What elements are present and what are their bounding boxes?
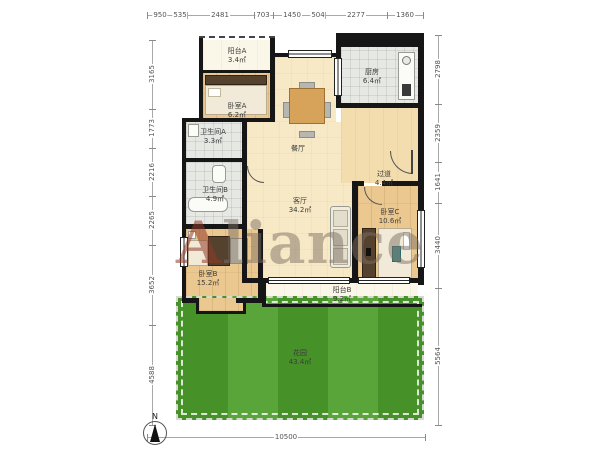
dim-label: 703	[255, 11, 270, 19]
dim-label: 1450	[282, 11, 302, 19]
tick	[149, 245, 156, 246]
dim-line-right	[438, 35, 439, 425]
window	[288, 50, 332, 58]
bed-c-pillow	[403, 232, 410, 250]
room-area: 4.4㎡	[375, 179, 393, 188]
balcony-open-edge	[199, 36, 275, 38]
dining-chair	[299, 131, 315, 138]
tick	[149, 196, 156, 197]
room-name: 餐厅	[291, 144, 305, 153]
sofa-cushion	[333, 248, 348, 265]
wall	[242, 118, 247, 282]
room-area: 9.2㎡	[333, 295, 351, 304]
tick	[435, 203, 442, 204]
wall	[182, 224, 247, 229]
tick	[149, 325, 156, 326]
bed-a-pillow	[208, 88, 221, 97]
room-name: 卫生间B	[202, 186, 228, 195]
dim-label: 2277	[346, 11, 366, 19]
dining-chair	[324, 102, 331, 118]
bed-a-headboard	[205, 75, 267, 85]
tick	[435, 425, 442, 426]
window	[358, 277, 410, 284]
dim-label: 5564	[434, 346, 442, 366]
tick	[423, 12, 424, 19]
entry-door-leaf	[411, 150, 413, 174]
wall	[182, 158, 246, 162]
room-area: 6.2㎡	[228, 111, 246, 120]
room-label-bedroom-b: 卧室B 15.2㎡	[197, 270, 220, 288]
dim-label: 2359	[434, 123, 442, 143]
window	[417, 210, 425, 268]
wall	[270, 38, 275, 122]
sofa-cushion	[333, 210, 348, 227]
room-name: 阳台B	[333, 286, 352, 295]
dim-label: 3440	[434, 235, 442, 255]
tick	[147, 12, 148, 19]
bathroom-a-sink	[188, 124, 199, 137]
dim-label: 2481	[210, 11, 230, 19]
wardrobe-b	[208, 236, 230, 266]
tick	[149, 109, 156, 110]
room-name: 厨房	[365, 68, 379, 77]
dim-label: 3165	[148, 64, 156, 84]
wall	[182, 298, 198, 303]
room-area: 3.3㎡	[204, 137, 222, 146]
tick	[425, 434, 426, 441]
room-label-living: 客厅 34.2㎡	[289, 197, 312, 215]
wall	[341, 103, 424, 108]
room-label-balcony-b: 阳台B 9.2㎡	[333, 286, 352, 304]
room-area: 4.9㎡	[206, 195, 224, 204]
wall	[262, 304, 422, 307]
room-label-dining: 餐厅	[291, 144, 305, 153]
room-label-garden: 花园 43.4㎡	[289, 349, 312, 367]
floor-plan: 阳台A 3.4㎡ 卧室A 6.2㎡ 卫生间A 3.3㎡ 厨房 6.4㎡ 餐厅 过…	[0, 0, 600, 450]
dim-label: 504	[310, 11, 325, 19]
compass: N	[140, 412, 170, 450]
dim-label: 2216	[148, 162, 156, 182]
tick	[435, 288, 442, 289]
wall	[352, 185, 358, 278]
tick	[435, 104, 442, 105]
tv	[366, 248, 371, 256]
wall	[236, 298, 262, 303]
dim-label: 1773	[148, 118, 156, 138]
tick	[149, 40, 156, 41]
dim-label: 950	[152, 11, 167, 19]
room-label-bedroom-c: 卧室C 10.6㎡	[379, 208, 402, 226]
dim-label: 1360	[395, 11, 415, 19]
room-area: 6.4㎡	[363, 77, 381, 86]
compass-icon	[143, 421, 167, 445]
room-area: 3.4㎡	[228, 56, 246, 65]
dim-label: 1641	[434, 172, 442, 192]
room-label-bathroom-a: 卫生间A 3.3㎡	[200, 128, 226, 146]
room-area: 43.4㎡	[289, 358, 312, 367]
tick	[387, 12, 388, 19]
tick	[149, 148, 156, 149]
tick	[273, 12, 274, 19]
room-label-kitchen: 厨房 6.4㎡	[363, 68, 381, 86]
room-name: 卧室C	[381, 208, 400, 217]
room-label-balcony-a: 阳台A 3.4㎡	[228, 47, 247, 65]
bed-c-throw	[392, 246, 401, 262]
wall	[199, 38, 203, 122]
room-area: 10.6㎡	[379, 217, 402, 226]
room-name: 阳台A	[228, 47, 247, 56]
nightstand	[188, 231, 196, 239]
room-label-bedroom-a: 卧室A 6.2㎡	[228, 102, 247, 120]
room-label-bathroom-b: 卫生间B 4.9㎡	[202, 186, 228, 204]
compass-north-label: N	[152, 412, 158, 421]
window	[334, 58, 342, 96]
room-label-hallway: 过道 4.4㎡	[375, 170, 393, 188]
dim-label: 2265	[148, 210, 156, 230]
dim-label: 10500	[274, 433, 298, 441]
window	[268, 277, 350, 284]
kitchen-sink	[402, 56, 411, 65]
tick	[435, 35, 442, 36]
kitchen-stove	[402, 84, 411, 96]
dining-table	[289, 88, 325, 124]
window	[180, 237, 188, 267]
toilet	[212, 165, 226, 183]
wall	[262, 283, 266, 306]
room-name: 卧室A	[228, 102, 247, 111]
room-name: 卫生间A	[200, 128, 226, 137]
tick	[435, 162, 442, 163]
dim-label: 3652	[148, 275, 156, 295]
sofa-cushion	[333, 229, 348, 246]
room-name: 客厅	[293, 197, 307, 206]
wall	[336, 33, 424, 47]
wall	[352, 181, 364, 186]
room-name: 花园	[293, 349, 307, 358]
room-name: 过道	[377, 170, 391, 179]
room-area: 15.2㎡	[197, 279, 220, 288]
room-area: 34.2㎡	[289, 206, 312, 215]
wall	[182, 118, 186, 302]
dim-label: 2798	[434, 59, 442, 79]
wall	[199, 70, 274, 73]
room-name: 卧室B	[199, 270, 218, 279]
dim-label: 535	[172, 11, 187, 19]
bed-b-mattress	[188, 240, 208, 266]
dim-label: 4588	[148, 365, 156, 385]
